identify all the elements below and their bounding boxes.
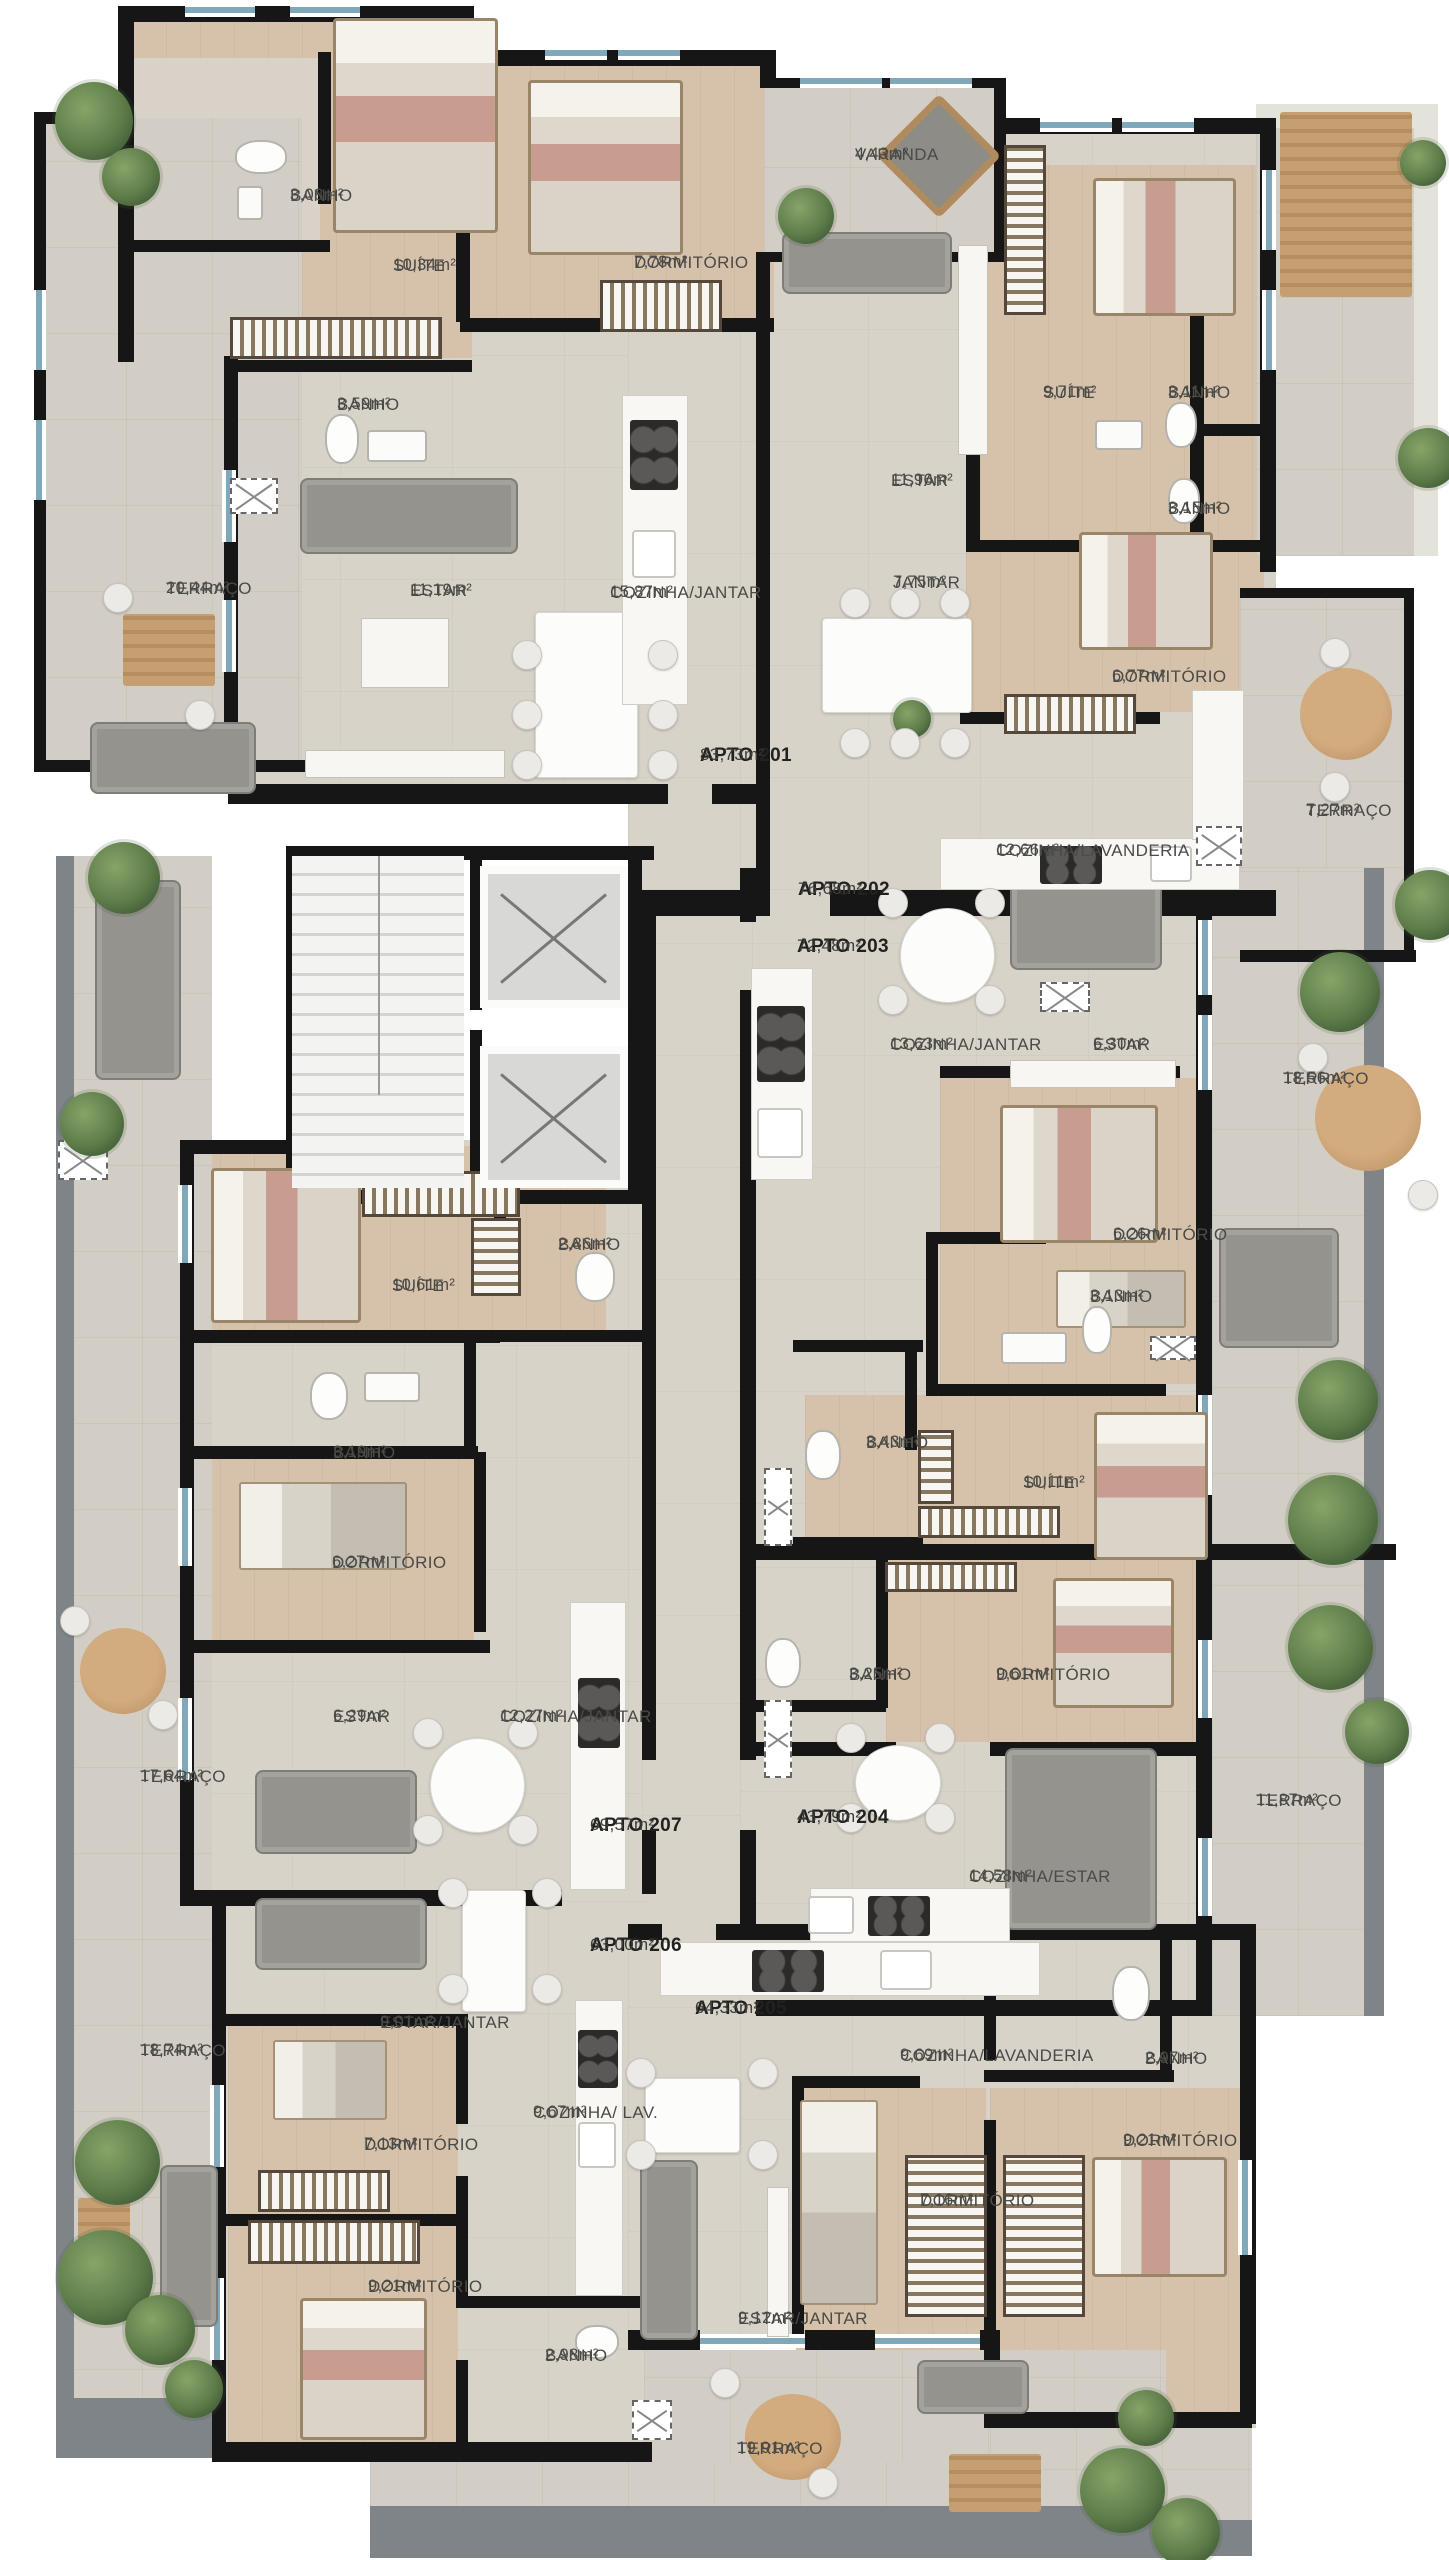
wall-segment <box>464 1342 476 1454</box>
window <box>1198 920 1212 995</box>
room-area: 17,64m² <box>140 1766 203 1787</box>
duct-shaft-icon <box>1150 1336 1196 1360</box>
sofa-icon <box>1219 1228 1339 1348</box>
wall-segment <box>640 916 656 1146</box>
window <box>1262 290 1276 370</box>
single-bed-icon <box>800 2100 878 2305</box>
wall-segment <box>642 1146 656 1760</box>
toilet-icon <box>1165 402 1197 448</box>
bath-sink-icon <box>364 1372 420 1402</box>
chair-icon <box>626 2140 656 2170</box>
room-area: 7,78m² <box>634 252 688 273</box>
chair-icon <box>890 728 920 758</box>
toilet-icon <box>1082 1306 1112 1354</box>
room-area: 3,11m² <box>1168 382 1221 403</box>
wardrobe-icon <box>258 2170 390 2212</box>
chair-icon <box>512 640 542 670</box>
room-area: 9,69m² <box>900 2045 954 2066</box>
wood-table-icon <box>80 1628 166 1714</box>
plant-icon <box>75 2120 160 2205</box>
stairs-icon <box>292 856 464 1188</box>
toilet-icon <box>310 1372 348 1420</box>
wood-deck-icon <box>123 614 215 686</box>
chair-icon <box>148 1700 178 1730</box>
window <box>875 2334 980 2348</box>
wall-segment <box>805 2330 875 2350</box>
chair-icon <box>512 700 542 730</box>
plant-icon <box>1300 952 1380 1032</box>
duct-shaft-icon <box>1196 826 1242 866</box>
wall-segment <box>180 1446 478 1459</box>
floor-patch <box>642 1616 756 1928</box>
duct-shaft-icon <box>230 478 278 514</box>
wall-segment <box>228 784 668 804</box>
wood-table-icon <box>745 2394 841 2480</box>
wood-deck-icon <box>1280 112 1412 297</box>
wall-segment <box>318 52 331 204</box>
bed-icon <box>300 2298 427 2440</box>
room-area: 7,16m² <box>920 2190 974 2211</box>
plant-icon <box>1288 1475 1378 1565</box>
plant-icon <box>1152 2498 1220 2560</box>
tv-console-icon <box>361 618 449 688</box>
room-area: 3,19m² <box>333 1442 387 1463</box>
room-area: 7,75m² <box>893 572 947 593</box>
chair-icon <box>925 1803 955 1833</box>
wardrobe-icon <box>905 2155 987 2317</box>
chair-icon <box>532 1974 562 2004</box>
window <box>32 420 46 500</box>
bed-icon <box>528 80 683 255</box>
cooktop-icon <box>757 1006 805 1082</box>
bed-icon <box>1092 2157 1227 2277</box>
single-bed-icon <box>273 2040 387 2120</box>
duct-shaft-icon <box>764 1468 792 1546</box>
wardrobe-icon <box>1003 2155 1085 2317</box>
sofa-icon <box>255 1898 427 1970</box>
room-area: 14,58m² <box>969 1866 1032 1887</box>
duct-shaft-icon <box>1040 982 1090 1012</box>
chair-icon <box>1320 638 1350 668</box>
bath-sink-icon <box>367 430 427 462</box>
tv-console-icon <box>958 245 988 455</box>
wardrobe-icon <box>248 2220 420 2264</box>
chair-icon <box>648 640 678 670</box>
plant-icon <box>1345 1700 1409 1764</box>
plant-icon <box>60 1092 124 1156</box>
chair-icon <box>710 2368 740 2398</box>
room-area: 7,13m² <box>364 2134 418 2155</box>
room-area: 4,43m² <box>855 144 909 165</box>
wall-segment <box>793 1340 923 1352</box>
chair-icon <box>438 1974 468 2004</box>
room-area: 9,01m² <box>380 2012 434 2033</box>
wardrobe-icon <box>1004 145 1046 315</box>
kitchen-counter-icon <box>660 1942 1040 1996</box>
kitchen-sink-icon <box>808 1896 854 1934</box>
plant-icon <box>1400 140 1446 186</box>
wall-segment <box>756 252 770 890</box>
room-area: 9,21m² <box>1123 2130 1177 2151</box>
room-area: 6,29m² <box>333 1706 387 1727</box>
chair-icon <box>748 2058 778 2088</box>
plant-icon <box>102 148 160 206</box>
wardrobe-icon <box>230 317 442 359</box>
room-area: 2,86m² <box>558 1234 612 1255</box>
kitchen-sink-icon <box>880 1950 932 1990</box>
plant-icon <box>165 2360 223 2418</box>
chair-icon <box>836 1723 866 1753</box>
room-area: 9,61m² <box>996 1664 1050 1685</box>
room-area: 3,15m² <box>1168 498 1222 519</box>
room-area: 18,56m² <box>1283 1068 1346 1089</box>
room-area: 9,12m² <box>738 2308 792 2329</box>
tv-console-icon <box>305 750 505 778</box>
wall-segment <box>926 1384 1166 1396</box>
plant-icon <box>125 2295 195 2365</box>
room-area: 3,08m² <box>290 185 344 206</box>
wall-segment <box>793 1537 923 1550</box>
chair-icon <box>925 1723 955 1753</box>
window <box>1040 118 1112 132</box>
wardrobe-icon <box>1004 694 1136 734</box>
sofa-icon <box>90 722 256 794</box>
chair-icon <box>975 888 1005 918</box>
chair-icon <box>185 700 215 730</box>
chair-icon <box>1320 772 1350 802</box>
chair-icon <box>1408 1180 1438 1210</box>
bath-sink-icon <box>237 186 263 220</box>
kitchen-sink-icon <box>578 2122 616 2168</box>
room-area: 2,97m² <box>1145 2048 1199 2069</box>
wood-table-icon <box>1300 668 1392 760</box>
bed-icon <box>1093 178 1236 316</box>
sofa-icon <box>1005 1748 1157 1930</box>
wall-segment <box>458 50 776 66</box>
apartment-area: 72,48m² <box>797 935 861 956</box>
floor-plan: BANHO3,08m²SUÍTE10,34m²DORMITÓRIO7,78m²V… <box>0 0 1449 2560</box>
bath-sink-icon <box>1095 420 1143 450</box>
toilet-icon <box>765 1638 801 1688</box>
wall-segment <box>494 1330 644 1342</box>
cooktop-icon <box>752 1950 824 1992</box>
kitchen-sink-icon <box>632 530 676 578</box>
window <box>1198 1015 1212 1090</box>
kitchen-sink-icon <box>757 1108 803 1158</box>
chair-icon <box>413 1815 443 1845</box>
toilet-icon <box>1112 1966 1150 2021</box>
wall-segment <box>212 2442 652 2462</box>
wall-segment <box>1196 1560 1212 2016</box>
round-table-icon <box>430 1738 525 1833</box>
duct-shaft-icon <box>632 2400 672 2440</box>
room-area: 20,44m² <box>166 578 229 599</box>
plant-icon <box>1080 2448 1165 2533</box>
wall-segment <box>456 2360 468 2446</box>
room-area: 15,87m² <box>610 582 673 603</box>
window <box>32 290 46 370</box>
toilet-icon <box>575 1252 615 1302</box>
wall-segment <box>800 2076 920 2088</box>
chair-icon <box>512 750 542 780</box>
cooktop-icon <box>630 420 678 490</box>
dining-table-icon <box>822 618 972 713</box>
wardrobe-icon <box>885 1562 1017 1592</box>
wall-segment <box>180 1140 292 1154</box>
room-area: 13,63m² <box>890 1034 953 1055</box>
chair-icon <box>878 985 908 1015</box>
room-area: 6,27m² <box>332 1552 386 1573</box>
room-area: 9,67m² <box>533 2102 587 2123</box>
dark-edge <box>56 856 74 2456</box>
wall-segment <box>228 360 472 372</box>
plant-icon <box>1118 2390 1174 2446</box>
plant-icon <box>88 842 160 914</box>
wardrobe-icon <box>918 1506 1060 1538</box>
dining-table-icon <box>645 2078 740 2153</box>
chair-icon <box>840 588 870 618</box>
sofa-icon <box>917 2360 1029 2414</box>
window <box>890 74 972 88</box>
room-area: 6,26m² <box>1113 1224 1167 1245</box>
window <box>700 2334 805 2348</box>
window <box>185 3 255 17</box>
chair-icon <box>508 1815 538 1845</box>
window <box>618 46 680 60</box>
cooktop-icon <box>868 1896 930 1936</box>
chair-icon <box>648 700 678 730</box>
plant-icon <box>1298 1360 1378 1440</box>
window <box>178 1185 192 1263</box>
elevator-icon <box>480 1046 628 1188</box>
chair-icon <box>532 1878 562 1908</box>
room-area: 19,91m² <box>737 2438 800 2459</box>
chair-icon <box>840 728 870 758</box>
bed-icon <box>1094 1412 1208 1560</box>
chair-icon <box>438 1878 468 1908</box>
room-area: 11,19m² <box>410 580 472 601</box>
wardrobe-icon <box>471 1218 521 1296</box>
window <box>178 1488 192 1566</box>
bed-icon <box>1079 532 1213 650</box>
plant-icon <box>778 188 834 244</box>
apartment-area: 83,73m² <box>700 744 764 765</box>
room-area: 10,34m² <box>393 255 456 276</box>
chair-icon <box>975 985 1005 1015</box>
room-area: 11,96m² <box>891 470 953 491</box>
room-area: 3,25m² <box>849 1664 903 1685</box>
room-area: 9,21m² <box>368 2276 422 2297</box>
room-area: 3,43m² <box>866 1432 920 1453</box>
chair-icon <box>748 2140 778 2170</box>
toilet-icon <box>235 140 287 174</box>
chair-icon <box>648 750 678 780</box>
wall-segment <box>180 1330 500 1343</box>
wall-segment <box>740 868 756 922</box>
room-area: 7,27m² <box>1306 800 1360 821</box>
room-area: 18,74m² <box>140 2040 203 2061</box>
plant-icon <box>1398 428 1449 488</box>
apartment-area: 76,68m² <box>798 878 862 899</box>
tv-console-icon <box>1010 1060 1176 1088</box>
room-area: 12,66m² <box>996 840 1059 861</box>
wall-segment <box>1190 424 1266 436</box>
apartment-area: 63,00m² <box>590 1934 654 1955</box>
window <box>1198 1838 1212 1916</box>
chair-icon <box>808 2468 838 2498</box>
room-area: 9,71m² <box>1043 382 1097 403</box>
wall-segment <box>926 1232 938 1390</box>
bed-icon <box>333 18 498 233</box>
wall-segment <box>132 240 330 252</box>
bed-icon <box>211 1168 361 1323</box>
plant-icon <box>1288 1605 1373 1690</box>
apartment-area: 64,33m² <box>695 1997 759 2018</box>
sofa-icon <box>640 2160 698 2340</box>
bath-sink-icon <box>1001 1332 1067 1364</box>
sofa-icon <box>1010 878 1162 970</box>
elevator-icon <box>480 866 628 1008</box>
cooktop-icon <box>578 2030 618 2088</box>
window <box>1198 1640 1212 1718</box>
apartment-area: 69,57m² <box>590 1814 654 1835</box>
room-area: 3,59m² <box>337 394 391 415</box>
room-area: 2,98m² <box>545 2345 599 2366</box>
room-area: 10,11m² <box>1023 1472 1085 1493</box>
wall-segment <box>1240 588 1414 598</box>
apartment-area: 43,79m² <box>797 1806 861 1827</box>
window <box>800 74 882 88</box>
wall-segment <box>180 1640 490 1653</box>
wall-segment <box>474 1452 486 1632</box>
window <box>1122 118 1194 132</box>
bed-icon <box>1053 1578 1174 1708</box>
wood-deck-icon <box>949 2454 1041 2512</box>
wall-segment <box>642 1830 656 1894</box>
chair-icon <box>940 728 970 758</box>
wall-segment <box>740 1830 756 1926</box>
wall-segment <box>456 2296 648 2308</box>
chair-icon <box>103 583 133 613</box>
chair-icon <box>626 2058 656 2088</box>
room-area: 3,13m² <box>1090 1286 1144 1307</box>
toilet-icon <box>805 1430 841 1480</box>
room-area: 12,27m² <box>500 1706 563 1727</box>
chair-icon <box>60 1606 90 1636</box>
window <box>210 2085 224 2167</box>
wardrobe-icon <box>600 280 722 332</box>
plant-icon <box>55 82 133 160</box>
toilet-icon <box>325 414 359 464</box>
sofa-icon <box>300 478 518 554</box>
duct-shaft-icon <box>764 1700 792 1778</box>
kitchen-counter-icon <box>1192 690 1244 840</box>
room-area: 11,87m² <box>1256 1790 1318 1811</box>
window <box>1262 170 1276 250</box>
wall-segment <box>984 2070 1174 2082</box>
room-area: 6,77m² <box>1112 666 1166 687</box>
window <box>290 3 360 17</box>
room-area: 10,61m² <box>392 1275 455 1296</box>
sofa-icon <box>255 1770 417 1854</box>
dining-table-icon <box>462 1890 526 2012</box>
window <box>545 46 607 60</box>
window <box>222 600 236 672</box>
chair-icon <box>413 1718 443 1748</box>
window <box>1238 2160 1252 2255</box>
bed-icon <box>1000 1105 1158 1243</box>
room-area: 6,30m² <box>1093 1034 1147 1055</box>
